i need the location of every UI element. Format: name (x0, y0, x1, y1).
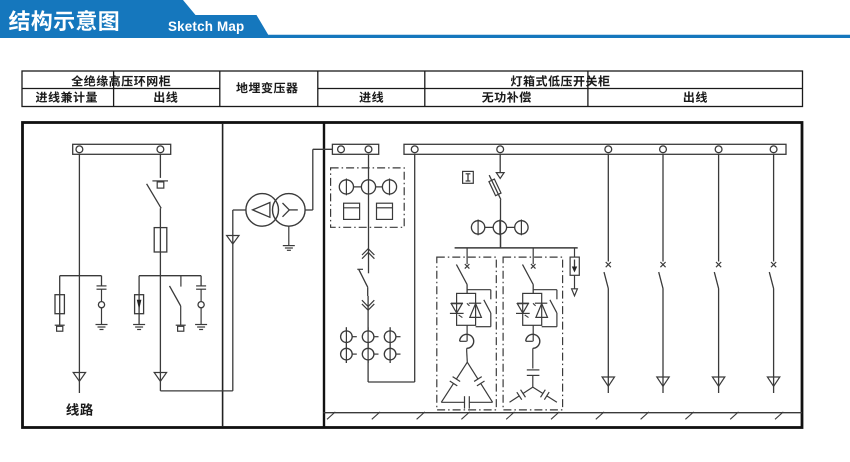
svg-text:Sketch Map: Sketch Map (168, 19, 244, 34)
